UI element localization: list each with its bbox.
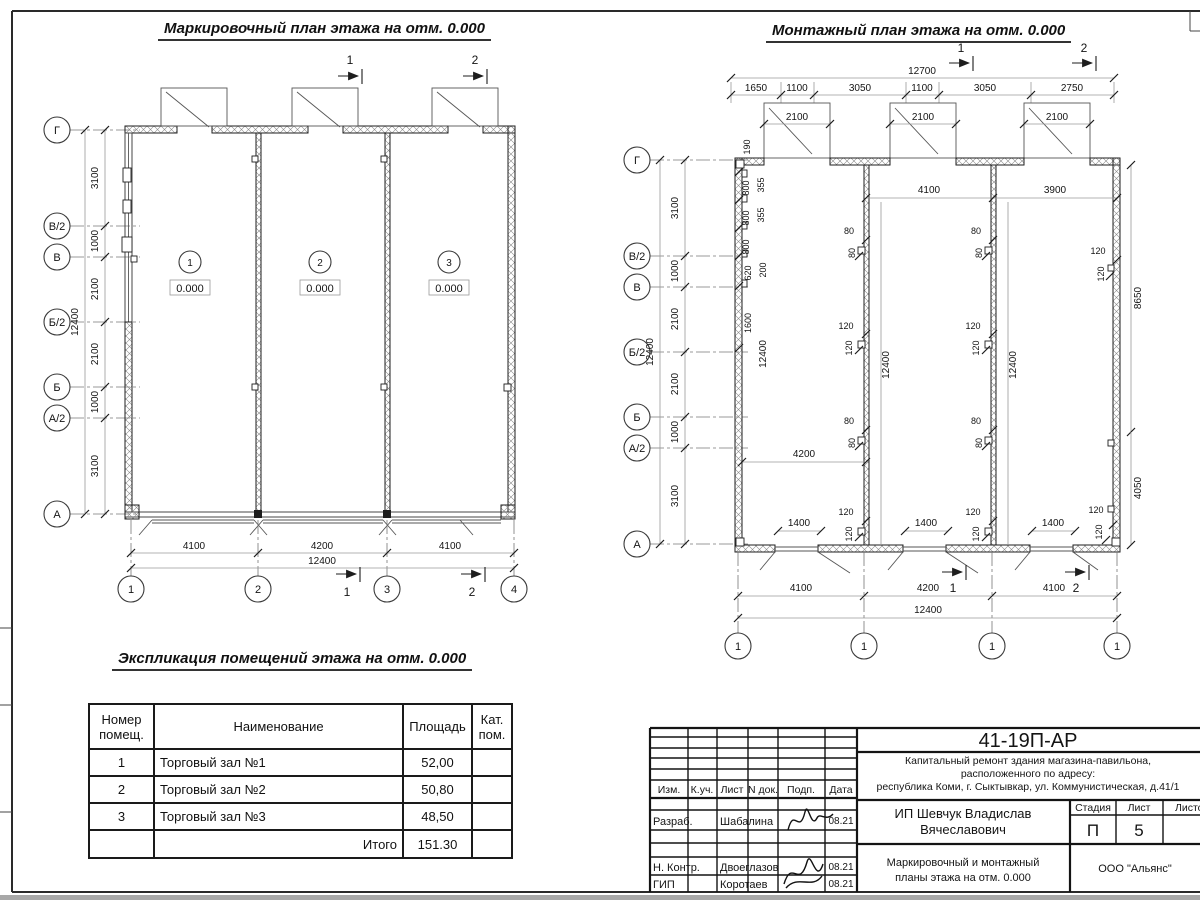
dim-label: 120 [1088,505,1103,515]
node-mark-label: 1 [735,641,741,653]
dim-label: 4100 [439,541,462,552]
axis-label: А [53,509,61,521]
tb-role: Разраб. [653,816,693,828]
drawing-sheet: Г В/2 В Б/2 Б А/2 А 3100 1000 2100 2100 … [0,0,1200,900]
dim-label: 3100 [670,484,681,507]
dim-label: 1400 [1042,518,1065,529]
room-number: 3 [446,258,452,269]
dim-label: 3100 [670,196,681,219]
sheets-label: Листов [1175,802,1200,814]
stage-label: Стадия [1075,802,1111,814]
room-schedule-title: Экспликация помещений этажа на отм. 0.00… [112,650,472,671]
table-row: 1 Торговый зал №1 52,00 [89,749,512,776]
dim-label: 12400 [914,605,942,616]
room-markers: 1 0.000 2 0.000 3 0.000 [170,251,469,295]
door-vestibules [161,88,498,127]
dim-label: 3900 [1044,185,1067,196]
column-axis-label: 4 [511,584,517,596]
room-name: Торговый зал №1 [154,749,403,776]
dim-label: 12400 [1008,351,1019,379]
stage-value: П [1087,821,1099,840]
section-mark-label: 2 [1081,41,1088,55]
dim-label: 190 [742,139,752,154]
axis-label: Г [54,125,60,137]
column-axis-label: 2 [255,584,261,596]
dim-label: 4200 [793,449,816,460]
dim-label: 120 [844,340,854,355]
dim-label: 12400 [308,556,336,567]
dim-label: 1100 [911,83,933,94]
dim-label: 120 [838,507,853,517]
axis-label: А/2 [49,413,66,425]
axis-label: В [53,252,60,264]
dim-label: 1650 [745,83,768,94]
section-mark-label: 1 [950,581,957,595]
col-header: Площадь [403,704,472,749]
bottom-dims: 4100 4200 4100 12400 1 2 3 4 [118,520,527,602]
table-row: 2 Торговый зал №2 50,80 [89,776,512,803]
dim-label: 200 [758,262,768,277]
dim-label: 12400 [758,340,769,368]
dim-label: 2100 [912,112,935,123]
room-num: 2 [89,776,154,803]
signature [784,859,823,888]
plan-walls [735,158,1120,573]
organization: ООО "Альянс" [1098,863,1172,875]
project-desc-line: Капитальный ремонт здания магазина-павил… [905,755,1151,767]
bottom-dims: 4100 4200 4100 12400 1 1 1 1 [725,552,1130,659]
dim-label: 120 [971,340,981,355]
dim-label: 1000 [90,229,101,252]
project-desc-line: расположенного по адресу: [961,768,1095,780]
section-marks-bottom: 1 2 [336,567,485,599]
dim-label: 80 [847,248,857,258]
dim-label: 120 [844,526,854,541]
dim-label: 1400 [788,518,811,529]
door-vestibules: 2100 2100 2100 [760,103,1094,158]
section-mark-label: 2 [469,585,476,599]
axis-lines [650,160,748,544]
dim-label: 2100 [670,307,681,330]
tb-col-podp: Подп. [787,784,815,796]
axis-label: В/2 [629,251,646,263]
dim-label: 80 [971,416,981,426]
room-level: 0.000 [435,283,463,295]
porch-lines [760,547,1098,573]
room-schedule: Номер помещ. Наименование Площадь Кат. п… [88,703,513,859]
dim-label: 12400 [881,351,892,379]
node-mark-label: 1 [989,641,995,653]
total-value: 151.30 [403,830,472,858]
dim-label: 2100 [670,372,681,395]
axis-label: А/2 [629,443,646,455]
dim-label: 80 [974,248,984,258]
marking-plan: Г В/2 В Б/2 Б А/2 А 3100 1000 2100 2100 … [44,53,527,602]
dim-label: 8650 [1133,286,1144,309]
col-header: Наименование [154,704,403,749]
client-line: Вячеславович [920,822,1006,837]
room-number: 1 [187,258,193,269]
room-cat [472,803,512,830]
client-line: ИП Шевчук Владислав [895,806,1032,821]
axis-label: Б/2 [49,317,65,329]
room-num: 3 [89,803,154,830]
section-mark-label: 1 [344,585,351,599]
dim-label: 3100 [90,166,101,189]
tb-date: 08.21 [828,879,853,890]
dim-label: 120 [971,526,981,541]
room-area: 48,50 [403,803,472,830]
tb-name: Двоеглазов [720,862,779,874]
dim-label: 4050 [1133,476,1144,499]
room-level: 0.000 [306,283,334,295]
sheet-title-line: планы этажа на отм. 0.000 [895,872,1031,884]
tb-name: Шабалина [720,816,774,828]
dim-label: 80 [847,438,857,448]
room-cat [472,749,512,776]
dim-label: 3050 [974,83,997,94]
dim-label: 3050 [849,83,872,94]
room-num: 1 [89,749,154,776]
tb-name: Коротаев [720,879,768,891]
tb-role: ГИП [653,879,675,891]
dim-label: 2100 [786,112,809,123]
node-mark-label: 1 [1114,641,1120,653]
col-header: Номер помещ. [89,704,154,749]
axis-label: Б [633,412,640,424]
dim-label: 2100 [90,277,101,300]
column-axis-label: 3 [384,584,390,596]
dim-label: 355 [756,207,766,222]
tb-col-izm: Изм. [658,784,681,796]
dim-label: 4100 [183,541,206,552]
section-marks-top: 1 2 [949,41,1096,71]
dim-label: 4100 [790,583,813,594]
doc-code: 41-19П-АР [979,730,1078,752]
dim-label: 80 [971,226,981,236]
axis-label: В [633,282,640,294]
empty-cell [89,830,154,858]
room-area: 50,80 [403,776,472,803]
top-dims: 12700 1650 1100 3050 1100 3050 2750 [727,66,1118,103]
dim-label: 80 [974,438,984,448]
dim-label: 800 [741,180,751,195]
section-mark-label: 2 [1073,581,1080,595]
dim-label: 1600 [743,313,753,333]
dim-label: 1100 [786,83,808,94]
dim-label: 4200 [917,583,940,594]
dim-label: 1000 [90,390,101,413]
row-axis-bubbles: Г В/2 В Б/2 Б А/2 А [44,117,70,527]
axis-label: Б/2 [629,347,645,359]
room-area: 52,00 [403,749,472,776]
tb-date: 08.21 [828,816,853,827]
section-marks-top: 1 2 [338,53,487,84]
dim-label: 2750 [1061,83,1084,94]
tb-role: Н. Контр. [653,862,700,874]
dim-label: 120 [838,321,853,331]
sheet-label: Лист [1128,802,1151,814]
dim-label: 120 [965,321,980,331]
section-mark-label: 1 [958,41,965,55]
dim-label: 3100 [90,454,101,477]
section-mark-label: 2 [472,53,479,67]
span-dims: 4100 3900 12400 12400 8650 4050 4200 [738,161,1144,549]
tb-col-kuch: К.уч. [691,784,714,796]
section-mark-label: 1 [347,53,354,67]
room-name: Торговый зал №2 [154,776,403,803]
porch-lines [139,520,501,535]
dim-label: 1400 [915,518,938,529]
tb-col-list: Лист [721,784,744,796]
opening-dims: 1400 1400 1400 [774,518,1079,535]
axis-label: А [633,539,641,551]
dim-label: 120 [1094,524,1104,539]
tb-col-ndok: N док. [748,784,778,796]
dim-label: 12700 [908,66,936,77]
axis-label: Б [53,382,60,394]
mounting-plan: 12700 1650 1100 3050 1100 3050 2750 1 2 [624,41,1144,659]
dim-label: 1000 [670,420,681,443]
dim-label: 4200 [311,541,334,552]
dim-label: 120 [1090,246,1105,256]
dim-label: 4100 [918,185,941,196]
sheet-value: 5 [1134,821,1143,840]
dim-label: 2100 [1046,112,1069,123]
dim-label: 4100 [1043,583,1066,594]
empty-cell [472,830,512,858]
plan-walls [122,88,515,535]
dim-label: 12400 [70,308,81,336]
node-mark-label: 1 [861,641,867,653]
axis-label: В/2 [49,221,66,233]
dim-label: 120 [1096,266,1106,281]
mounting-plan-title: Монтажный план этажа на отм. 0.000 [766,22,1071,43]
room-schedule-table: Номер помещ. Наименование Площадь Кат. п… [88,703,513,859]
room-number: 2 [317,258,323,269]
tb-date: 08.21 [828,862,853,873]
dim-label: 12400 [645,338,656,366]
room-name: Торговый зал №3 [154,803,403,830]
room-cat [472,776,512,803]
total-label: Итого [154,830,403,858]
table-row: 3 Торговый зал №3 48,50 [89,803,512,830]
dim-label: 355 [756,177,766,192]
signature [788,809,833,830]
sheet-title-line: Маркировочный и монтажный [887,857,1040,869]
room-level: 0.000 [176,283,204,295]
marking-plan-title: Маркировочный план этажа на отм. 0.000 [158,20,491,41]
dim-label: 80 [844,226,854,236]
dim-label: 620 [743,265,753,280]
dim-label: 2100 [90,342,101,365]
table-total-row: Итого 151.30 [89,830,512,858]
col-header: Кат. пом. [472,704,512,749]
dim-label: 800 [741,210,751,225]
column-axis-label: 1 [128,584,134,596]
project-desc-line: республика Коми, г. Сыктывкар, ул. Комму… [876,781,1179,793]
title-block: 41-19П-АР Капитальный ремонт здания мага… [650,728,1200,892]
dim-label: 1000 [670,259,681,282]
tb-col-data: Дата [829,784,852,796]
dim-label: 120 [965,507,980,517]
dim-label: 80 [844,416,854,426]
axis-label: Г [634,155,640,167]
